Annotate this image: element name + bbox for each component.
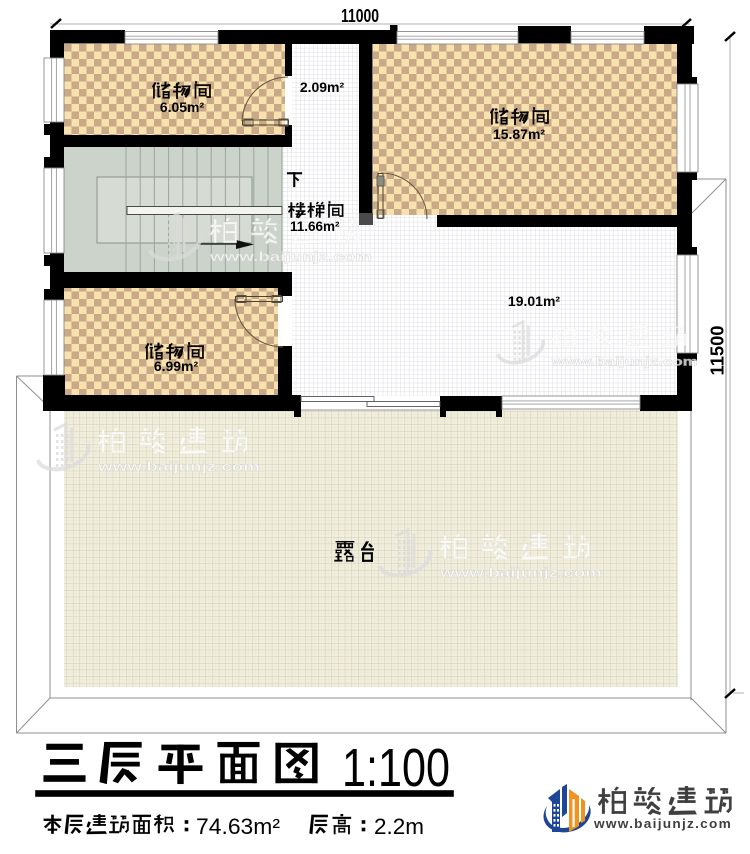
svg-text:11500: 11500 (708, 326, 728, 376)
svg-text:www.baijunjz.com: www.baijunjz.com (439, 565, 602, 580)
svg-text:6.05m²: 6.05m² (160, 99, 205, 115)
svg-text:2.2m: 2.2m (374, 814, 424, 839)
svg-text:74.63m²: 74.63m² (196, 814, 280, 839)
svg-text:2.09m²: 2.09m² (300, 79, 345, 95)
svg-text:11.66m²: 11.66m² (290, 219, 340, 234)
svg-text:15.87m²: 15.87m² (493, 126, 545, 142)
svg-text:1:100: 1:100 (342, 738, 450, 798)
svg-text:19.01m²: 19.01m² (508, 293, 560, 309)
svg-text:www.baijunjz.com: www.baijunjz.com (550, 356, 697, 369)
svg-text:11000: 11000 (341, 6, 379, 26)
svg-text:www.baijunjz.com: www.baijunjz.com (593, 816, 732, 831)
svg-text:www.baijunjz.com: www.baijunjz.com (209, 249, 372, 264)
svg-text:6.99m²: 6.99m² (154, 358, 199, 374)
svg-text:www.baijunjz.com: www.baijunjz.com (97, 459, 260, 474)
